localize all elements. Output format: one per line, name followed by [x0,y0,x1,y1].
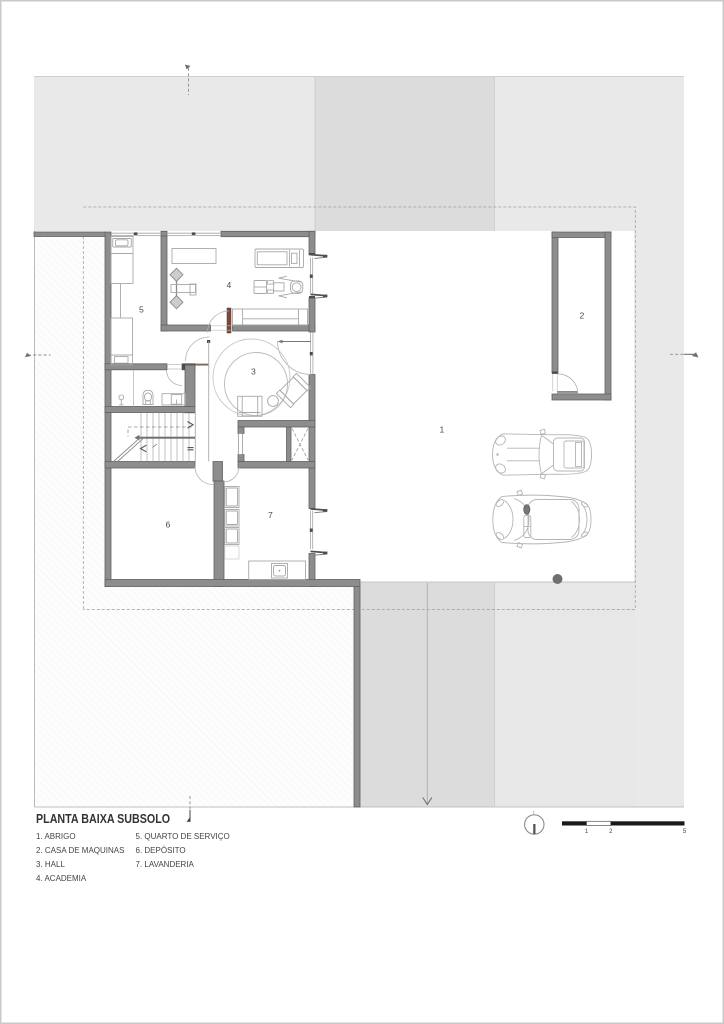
svg-text:4: 4 [227,280,232,290]
svg-text:7. LAVANDERIA: 7. LAVANDERIA [136,860,195,869]
svg-text:1. ABRIGO: 1. ABRIGO [36,832,76,841]
svg-text:7: 7 [268,510,273,520]
svg-text:5. QUARTO DE SERVIÇO: 5. QUARTO DE SERVIÇO [136,832,230,841]
svg-text:PLANTA BAIXA SUBSOLO: PLANTA BAIXA SUBSOLO [36,811,170,826]
svg-text:6: 6 [166,520,171,530]
svg-text:6. DEPÓSITO: 6. DEPÓSITO [136,846,186,855]
svg-text:2. CASA DE MAQUINAS: 2. CASA DE MAQUINAS [36,846,124,855]
svg-text:5: 5 [139,305,144,315]
svg-text:3: 3 [251,367,256,377]
svg-text:1: 1 [440,425,445,435]
svg-text:4. ACADEMIA: 4. ACADEMIA [36,874,87,883]
svg-text:2: 2 [580,311,585,321]
svg-text:3. HALL: 3. HALL [36,860,65,869]
